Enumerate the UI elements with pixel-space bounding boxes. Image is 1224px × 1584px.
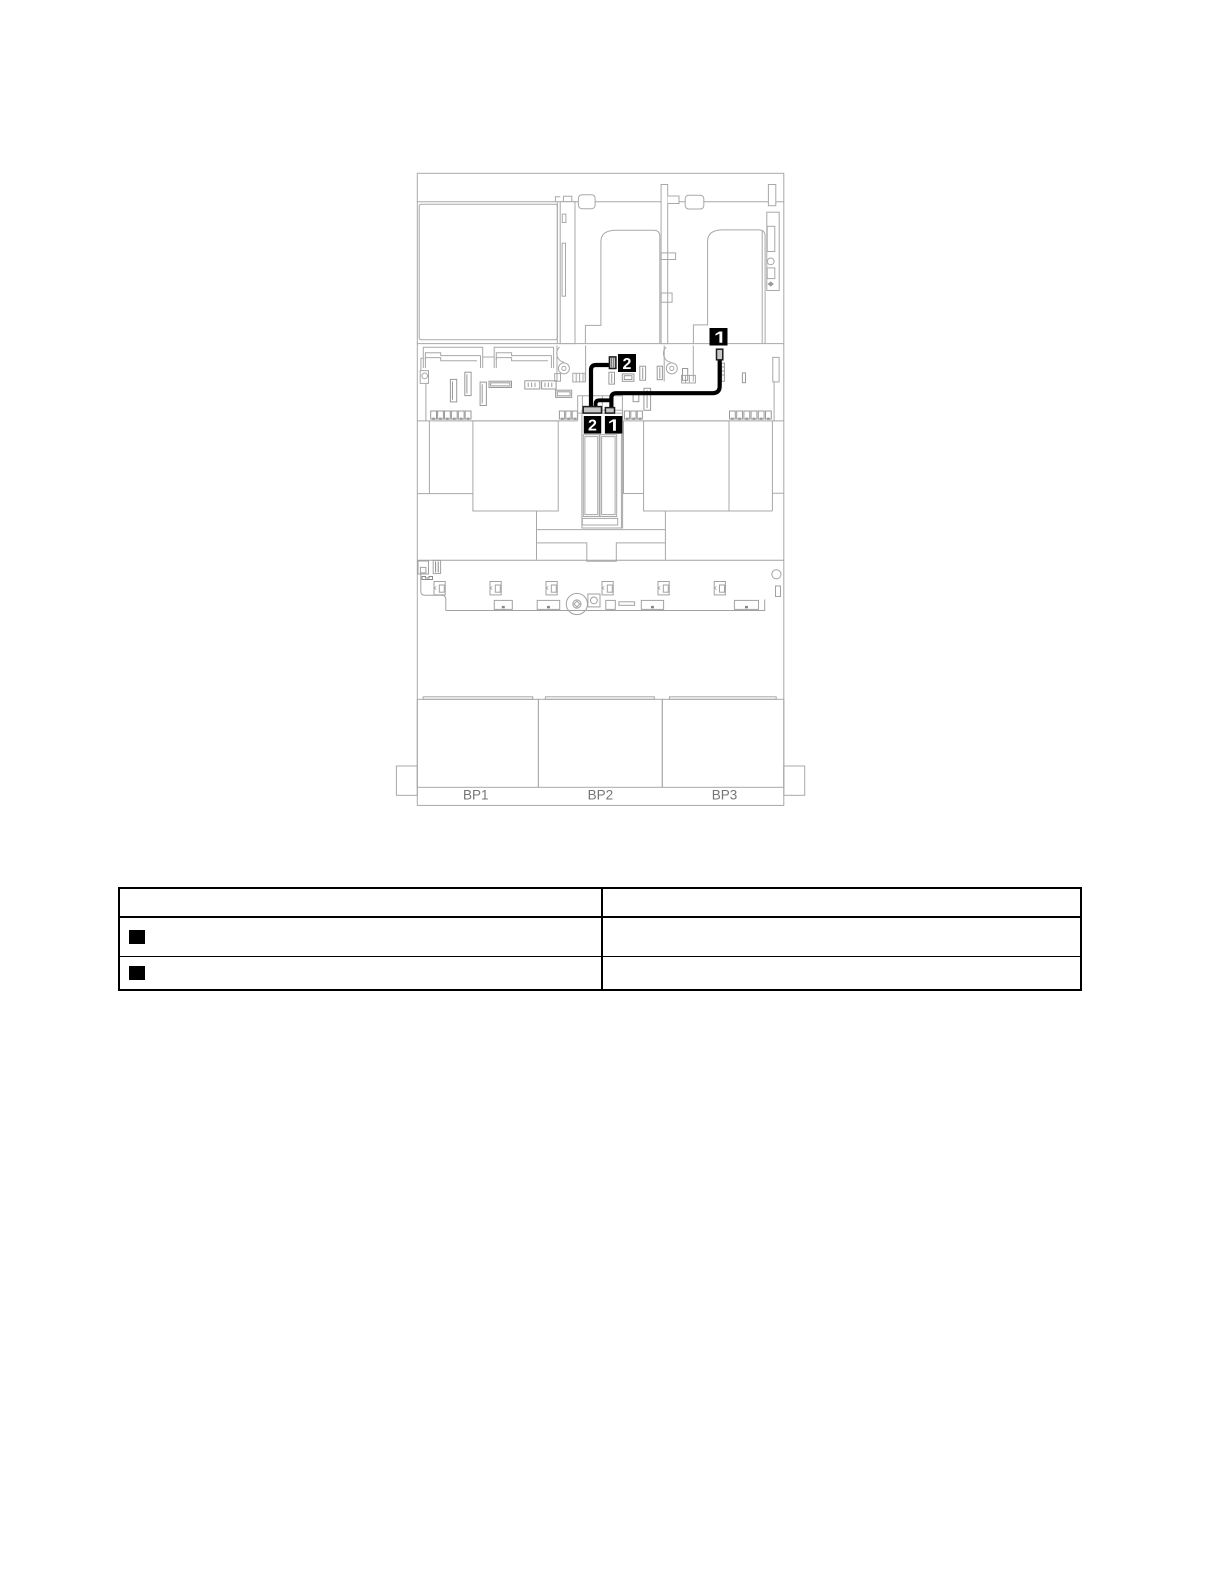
svg-text:2: 2 xyxy=(588,418,597,435)
svg-text:BP1: BP1 xyxy=(463,788,489,803)
svg-text:2: 2 xyxy=(623,356,632,373)
svg-text:BP2: BP2 xyxy=(588,788,614,803)
svg-text:BP3: BP3 xyxy=(712,788,738,803)
